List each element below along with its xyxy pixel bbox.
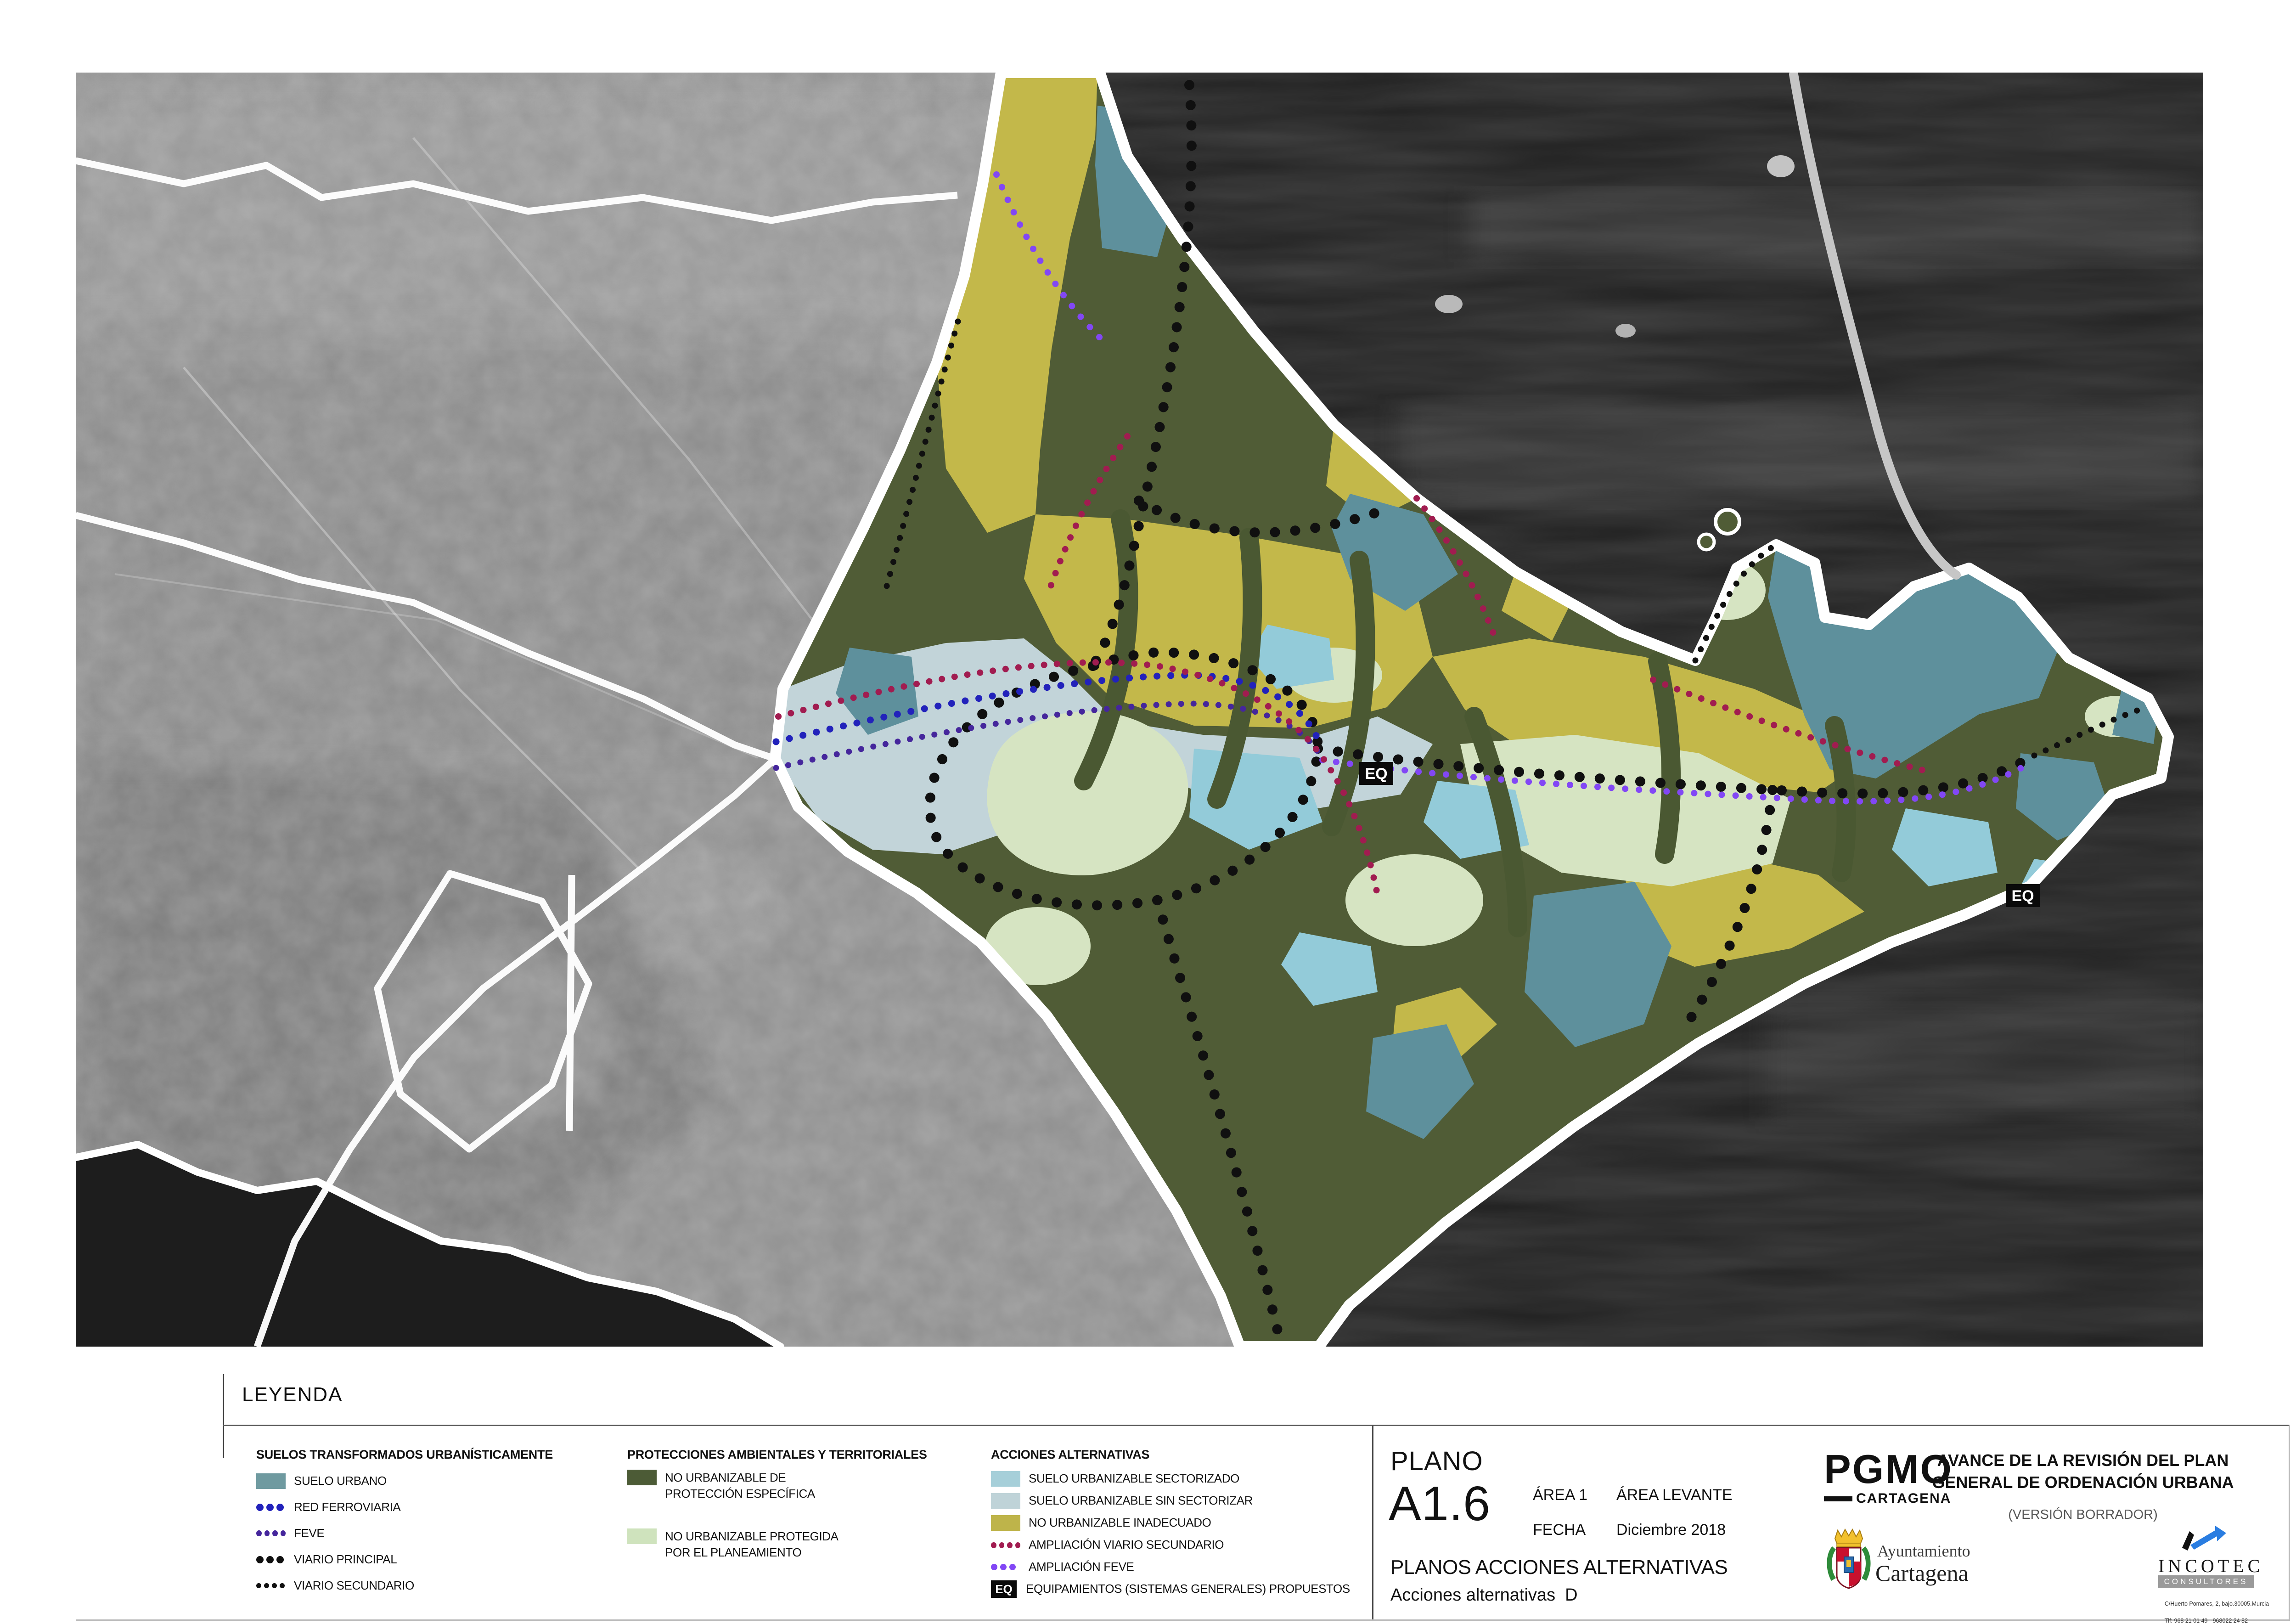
urbanizable-sectorizado-swatch [991, 1471, 1020, 1487]
legend-item-ampliacion-feve: AMPLIACIÓN FEVE [991, 1556, 1369, 1578]
legend-divider-tick [223, 1374, 224, 1458]
urbanizable-sin-sectorizar-swatch [991, 1493, 1020, 1509]
protegida-planeamiento-swatch [627, 1528, 657, 1544]
incotec-name: INCOTEC [2158, 1555, 2263, 1577]
legend-column-suelos-transformados: SUELOS TRANSFORMADOS URBANÍSTICAMENTE SU… [256, 1441, 619, 1599]
eq-marker-label: EQ [2011, 887, 2034, 905]
label-line: NO URBANIZABLE PROTEGIDA [665, 1529, 838, 1543]
avance-title: AVANCE DE LA REVISIÓN DEL PLAN GENERAL D… [1919, 1449, 2246, 1493]
incotec-logo-icon [2179, 1524, 2230, 1556]
legend-item-label: NO URBANIZABLE PROTEGIDA POR EL PLANEAMI… [665, 1528, 838, 1561]
legend-item-label: AMPLIACIÓN VIARIO SECUNDARIO [1029, 1537, 1224, 1553]
eq-chip-icon: EQ [991, 1580, 1017, 1598]
legend-item-label: RED FERROVIARIA [294, 1499, 400, 1515]
cartagena-coat-of-arms-icon [1827, 1526, 1871, 1601]
legend-item-feve: FEVE [256, 1520, 619, 1546]
legend-item-label: VIARIO PRINCIPAL [294, 1551, 397, 1568]
legend-item-viario-secundario: VIARIO SECUNDARIO [256, 1573, 619, 1599]
plano-label: PLANO [1390, 1446, 1483, 1477]
legend-item-viario-principal: VIARIO PRINCIPAL [256, 1546, 619, 1573]
legend-item-label: SUELO URBANIZABLE SIN SECTORIZAR [1029, 1493, 1253, 1509]
legend-column-protecciones: PROTECCIONES AMBIENTALES Y TERRITORIALES… [627, 1441, 985, 1585]
proteccion-especifica-swatch [627, 1470, 657, 1485]
fecha-value: Diciembre 2018 [1616, 1521, 1726, 1539]
incotec-consultores-bar: CONSULTORES [2158, 1575, 2254, 1588]
ampliacion-viario-dots-icon [991, 1542, 1020, 1548]
legend-col3-header: ACCIONES ALTERNATIVAS [991, 1441, 1369, 1468]
plano-code: A1.6 [1389, 1476, 1491, 1532]
island [1435, 295, 1463, 313]
ayuntamiento-text: Ayuntamiento [1877, 1541, 1970, 1561]
legend-top-rule [223, 1425, 2290, 1426]
legend-item-label: VIARIO SECUNDARIO [294, 1578, 414, 1594]
legend-item-label: NO URBANIZABLE INADECUADO [1029, 1515, 1211, 1531]
map-image: EQ EQ [76, 73, 2203, 1347]
label-line: NO URBANIZABLE DE [665, 1471, 786, 1484]
legend-item-sectorizado: SUELO URBANIZABLE SECTORIZADO [991, 1468, 1369, 1490]
pgmo-sub-text: CARTAGENA [1856, 1491, 1951, 1506]
label-line: PROTECCIÓN ESPECÍFICA [665, 1487, 815, 1500]
legend-item-suelo-urbano: SUELO URBANO [256, 1468, 619, 1494]
legend-item-protegida-planeamiento: NO URBANIZABLE PROTEGIDA POR EL PLANEAMI… [627, 1527, 985, 1585]
island-olive [1699, 534, 1714, 550]
incotec-address-line2: Tlf: 968 21 01 49 - 968022 24 82 [2165, 1618, 2248, 1624]
eq-marker: EQ [1359, 762, 1393, 785]
legend-col1-header: SUELOS TRANSFORMADOS URBANÍSTICAMENTE [256, 1441, 619, 1468]
plan-sheet: EQ EQ LEYENDA SUELOS TRANSFORMADOS URBAN… [0, 0, 2296, 1624]
feve-dots-icon [256, 1530, 286, 1536]
eq-marker: EQ [2006, 884, 2040, 907]
legend-item-inadecuado: NO URBANIZABLE INADECUADO [991, 1512, 1369, 1534]
legend-column-acciones-alternativas: ACCIONES ALTERNATIVAS SUELO URBANIZABLE … [991, 1441, 1369, 1600]
suelo-urbano-swatch [256, 1473, 286, 1489]
legend-item-equipamientos: EQ EQUIPAMIENTOS (SISTEMAS GENERALES) PR… [991, 1578, 1369, 1600]
legend-item-ampliacion-viario: AMPLIACIÓN VIARIO SECUNDARIO [991, 1534, 1369, 1556]
island [1615, 324, 1636, 338]
legend-item-red-ferroviaria: RED FERROVIARIA [256, 1494, 619, 1520]
map-svg: EQ EQ [76, 73, 2203, 1347]
legend-item-label: AMPLIACIÓN FEVE [1029, 1559, 1134, 1575]
pgmo-dash-icon [1824, 1496, 1852, 1501]
area-value: ÁREA LEVANTE [1616, 1486, 1733, 1504]
legend-item-sin-sectorizar: SUELO URBANIZABLE SIN SECTORIZAR [991, 1490, 1369, 1512]
avance-line2: GENERAL DE ORDENACIÓN URBANA [1932, 1473, 2234, 1492]
incotec-address: C/Huerto Pomares, 2, bajo.30005.Murcia T… [2158, 1591, 2269, 1624]
no-urbanizable-inadecuado-swatch [991, 1515, 1020, 1531]
red-ferroviaria-dots-icon [256, 1504, 286, 1511]
viario-secundario-dots-icon [256, 1583, 286, 1588]
island [1767, 155, 1795, 177]
legend-title: LEYENDA [242, 1383, 343, 1406]
incotec-address-line1: C/Huerto Pomares, 2, bajo.30005.Murcia [2165, 1601, 2269, 1607]
legend-item-proteccion-especifica: NO URBANIZABLE DE PROTECCIÓN ESPECÍFICA [627, 1468, 985, 1527]
sheet-right-rule [2289, 1425, 2290, 1619]
titleblock-divider [1372, 1425, 1373, 1619]
viario-principal-dots-icon [256, 1556, 286, 1563]
sheet-bottom-rule [76, 1619, 2290, 1621]
avance-line1: AVANCE DE LA REVISIÓN DEL PLAN [1937, 1451, 2229, 1470]
version-note: (VERSIÓN BORRADOR) [1919, 1507, 2246, 1522]
legend-item-label: SUELO URBANO [294, 1473, 387, 1489]
legend-item-label: SUELO URBANIZABLE SECTORIZADO [1029, 1471, 1239, 1487]
pgmo-logo-subline: CARTAGENA [1824, 1491, 1951, 1506]
ampliacion-feve-dots-icon [991, 1564, 1020, 1570]
eq-marker-label: EQ [1365, 765, 1387, 783]
series-title: PLANOS ACCIONES ALTERNATIVAS [1390, 1556, 1728, 1579]
legend-item-label: FEVE [294, 1525, 324, 1541]
legend-item-label: NO URBANIZABLE DE PROTECCIÓN ESPECÍFICA [665, 1470, 815, 1502]
legend-item-label: EQUIPAMIENTOS (SISTEMAS GENERALES) PROPU… [1026, 1581, 1350, 1597]
island-olive [1716, 510, 1739, 534]
area-label: ÁREA 1 [1533, 1486, 1587, 1504]
legend-col2-header: PROTECCIONES AMBIENTALES Y TERRITORIALES [627, 1441, 985, 1468]
cartagena-text: Cartagena [1875, 1560, 1969, 1586]
label-line: POR EL PLANEAMIENTO [665, 1545, 801, 1559]
fecha-label: FECHA [1533, 1521, 1586, 1539]
sheet-subtitle: Acciones alternativas D [1390, 1585, 1578, 1605]
